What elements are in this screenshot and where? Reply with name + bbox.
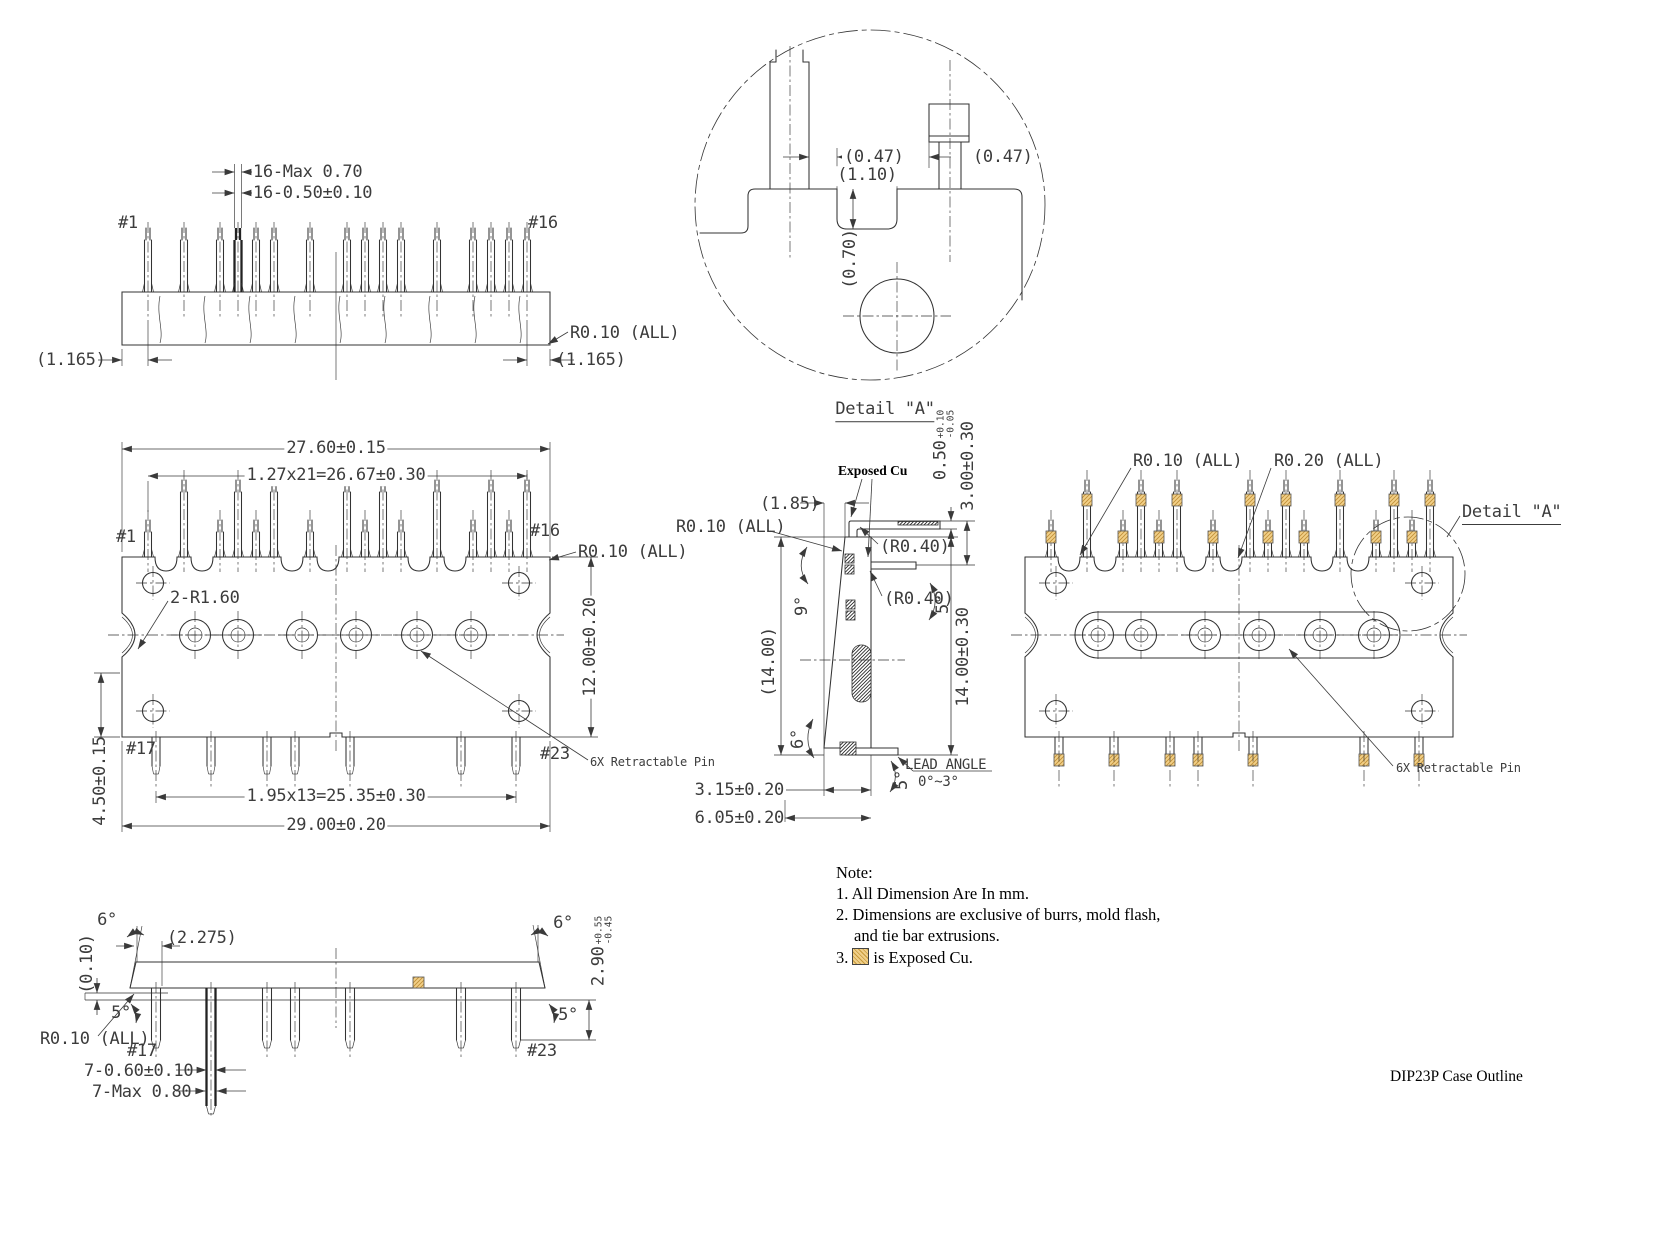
side-height-dim: 14.00±0.30 (954, 607, 974, 706)
front-overall-width-dim: 29.00±0.20 (284, 816, 387, 836)
front-pin1-label: #1 (116, 528, 136, 548)
top-pin1-label: #1 (118, 214, 138, 234)
note-3: 3.is Exposed Cu. (836, 948, 973, 968)
side-angle-6: 6° (789, 729, 809, 749)
notes-heading: Note: (836, 864, 873, 883)
side-radius-label: R0.10 (ALL) (676, 518, 785, 538)
top-pin16-label: #16 (528, 214, 558, 234)
lead-thickness-tolerance: +0.10-0.05 (937, 410, 957, 439)
front-retractable-note: 6X Retractable Pin (590, 756, 715, 770)
top-pin-nom-dim: 16-0.50±0.10 (253, 184, 372, 204)
right-radius20-label: R0.20 (ALL) (1274, 452, 1383, 472)
lead-thickness-value: 0.50 (931, 440, 951, 480)
detail-slot-depth-dim: (0.70) (841, 229, 861, 289)
side-overall-thickness-dim: 6.05±0.20 (690, 809, 784, 829)
bottom-pin23-label: #23 (527, 1042, 557, 1062)
side-bend-radius-top: (R0.40) (880, 538, 950, 558)
detail-clearance-right-dim: (0.47) (973, 148, 1033, 168)
bottom-pin-width-max-dim: 7-Max 0.80 (92, 1083, 191, 1103)
side-lead-angle-value: 0°~3° (918, 774, 959, 790)
side-lead-height-dim: 3.00±0.30 (959, 421, 979, 510)
front-pin16-label: #16 (530, 522, 560, 542)
bottom-angle-5-right: 5° (558, 1006, 578, 1026)
side-lead-thickness-dim: 0.50+0.10-0.05 (932, 410, 957, 480)
bottom-angle-5-left: 5° (111, 1004, 131, 1024)
side-angle-9: 9° (793, 596, 813, 616)
right-view-drawing (1011, 468, 1467, 789)
front-width-dim: 27.60±0.15 (284, 439, 387, 459)
front-pin23-label: #23 (540, 745, 570, 765)
side-height-ref-dim: (14.00) (760, 627, 780, 697)
bottom-pin-width-dim: 7-0.60±0.10 (84, 1062, 193, 1082)
front-height-dim: 12.00±0.20 (581, 595, 601, 698)
side-thickness-dim: 3.15±0.20 (690, 781, 784, 801)
detail-slot-width-dim: (1.10) (835, 166, 899, 186)
side-exposed-cu-label: Exposed Cu (838, 463, 907, 479)
detail-a-title: Detail "A" (835, 400, 934, 422)
front-radius-label: R0.10 (ALL) (578, 543, 687, 563)
side-angle-5-top: 5° (934, 594, 954, 614)
front-corner-radius: 2-R1.60 (170, 589, 240, 609)
side-lead-angle-label: LEAD ANGLE (905, 757, 986, 773)
front-view-drawing (94, 442, 598, 832)
detail-a-drawing (695, 30, 1045, 380)
bottom-tip-length-dim: 2.90+0.55-0.45 (590, 916, 615, 986)
front-pin-offset-dim: 4.50±0.15 (91, 736, 111, 825)
side-top-width-dim: (1.85) (760, 495, 818, 515)
right-radius10-label: R0.10 (ALL) (1133, 452, 1242, 472)
drawing-title: DIP23P Case Outline (1390, 1068, 1523, 1086)
right-detail-a-label: Detail "A" (1462, 503, 1561, 525)
note-2: 2. Dimensions are exclusive of burrs, mo… (836, 906, 1160, 925)
front-pitch-dim: 1.27x21=26.67±0.30 (245, 466, 428, 486)
note-1: 1. All Dimension Are In mm. (836, 885, 1029, 904)
note-2b: and tie bar extrusions. (854, 927, 1000, 946)
tip-length-tolerance: +0.55-0.45 (595, 916, 615, 945)
front-pitch-bottom-dim: 1.95x13=25.35±0.30 (245, 787, 428, 807)
bottom-angle-6-right: 6° (553, 914, 573, 934)
drawing-canvas (0, 0, 1657, 1233)
top-radius-label: R0.10 (ALL) (570, 324, 679, 344)
bottom-pin-offset-dim: (2.275) (167, 929, 237, 949)
right-retractable-note: 6X Retractable Pin (1396, 762, 1521, 776)
top-offset-right: (1.165) (556, 351, 626, 371)
bottom-pin17-label: #17 (127, 1042, 157, 1062)
front-pin17-label: #17 (126, 740, 156, 760)
exposed-cu-swatch (852, 948, 869, 965)
bottom-standoff-dim: (0.10) (78, 934, 98, 994)
top-pin-max-dim: 16-Max 0.70 (253, 163, 362, 183)
tip-length-value: 2.90 (589, 946, 609, 986)
bottom-angle-6-left: 6° (97, 911, 117, 931)
drawing-sheet: 16-Max 0.70 16-0.50±0.10 #1 #16 (1.165) … (0, 0, 1657, 1233)
top-offset-left: (1.165) (36, 351, 94, 371)
